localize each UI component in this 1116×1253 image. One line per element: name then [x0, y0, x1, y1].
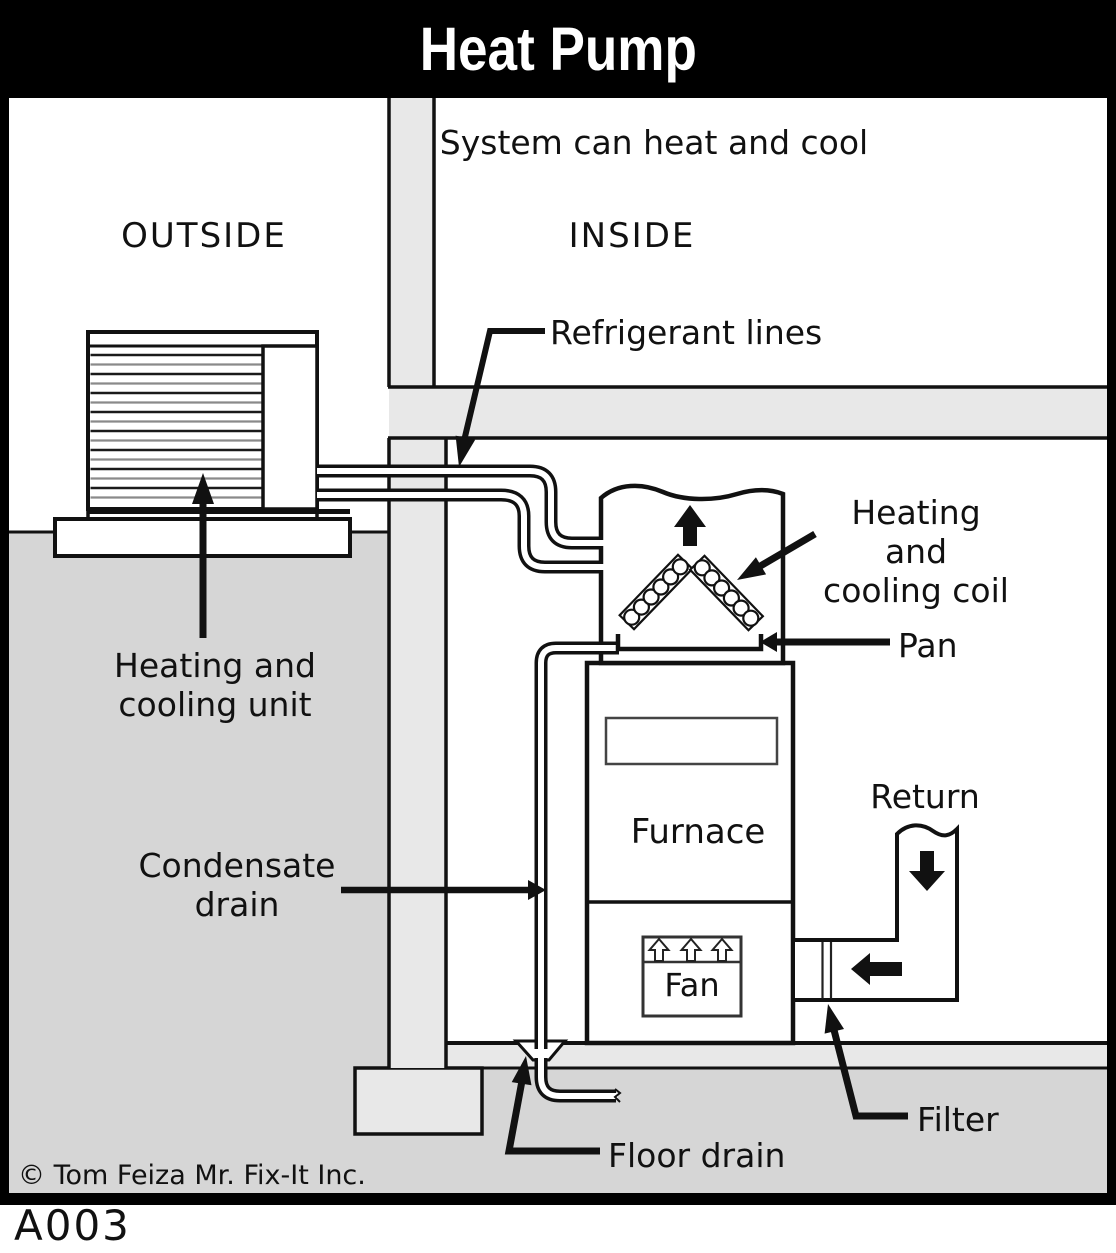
region-inside: INSIDE — [569, 217, 696, 256]
label-pan: Pan — [898, 626, 958, 665]
label-heating-cooling-coil: Heating and cooling coil — [816, 493, 1016, 610]
heat-pump-diagram: Heat Pump — [0, 0, 1116, 1253]
label-refrigerant-lines: Refrigerant lines — [550, 313, 822, 352]
floor-band — [388, 387, 1107, 438]
label-filter: Filter — [917, 1100, 999, 1139]
region-outside: OUTSIDE — [121, 217, 287, 256]
label-furnace: Furnace — [631, 813, 766, 852]
exterior-wall — [389, 98, 434, 387]
diagram-code: A003 — [14, 1206, 131, 1245]
label-floor-drain: Floor drain — [608, 1136, 785, 1175]
label-heating-cooling-unit: Heating and cooling unit — [114, 646, 316, 724]
copyright-text: © Tom Feiza Mr. Fix-It Inc. — [18, 1156, 366, 1195]
label-fan: Fan — [664, 966, 719, 1005]
foundation-wall — [389, 438, 446, 1068]
furnace-control-panel — [606, 718, 777, 764]
label-return: Return — [870, 777, 980, 816]
label-condensate-drain: Condensate drain — [139, 846, 336, 924]
subtitle: System can heat and cool — [440, 123, 868, 162]
footing — [355, 1068, 482, 1134]
outdoor-unit — [88, 332, 350, 519]
